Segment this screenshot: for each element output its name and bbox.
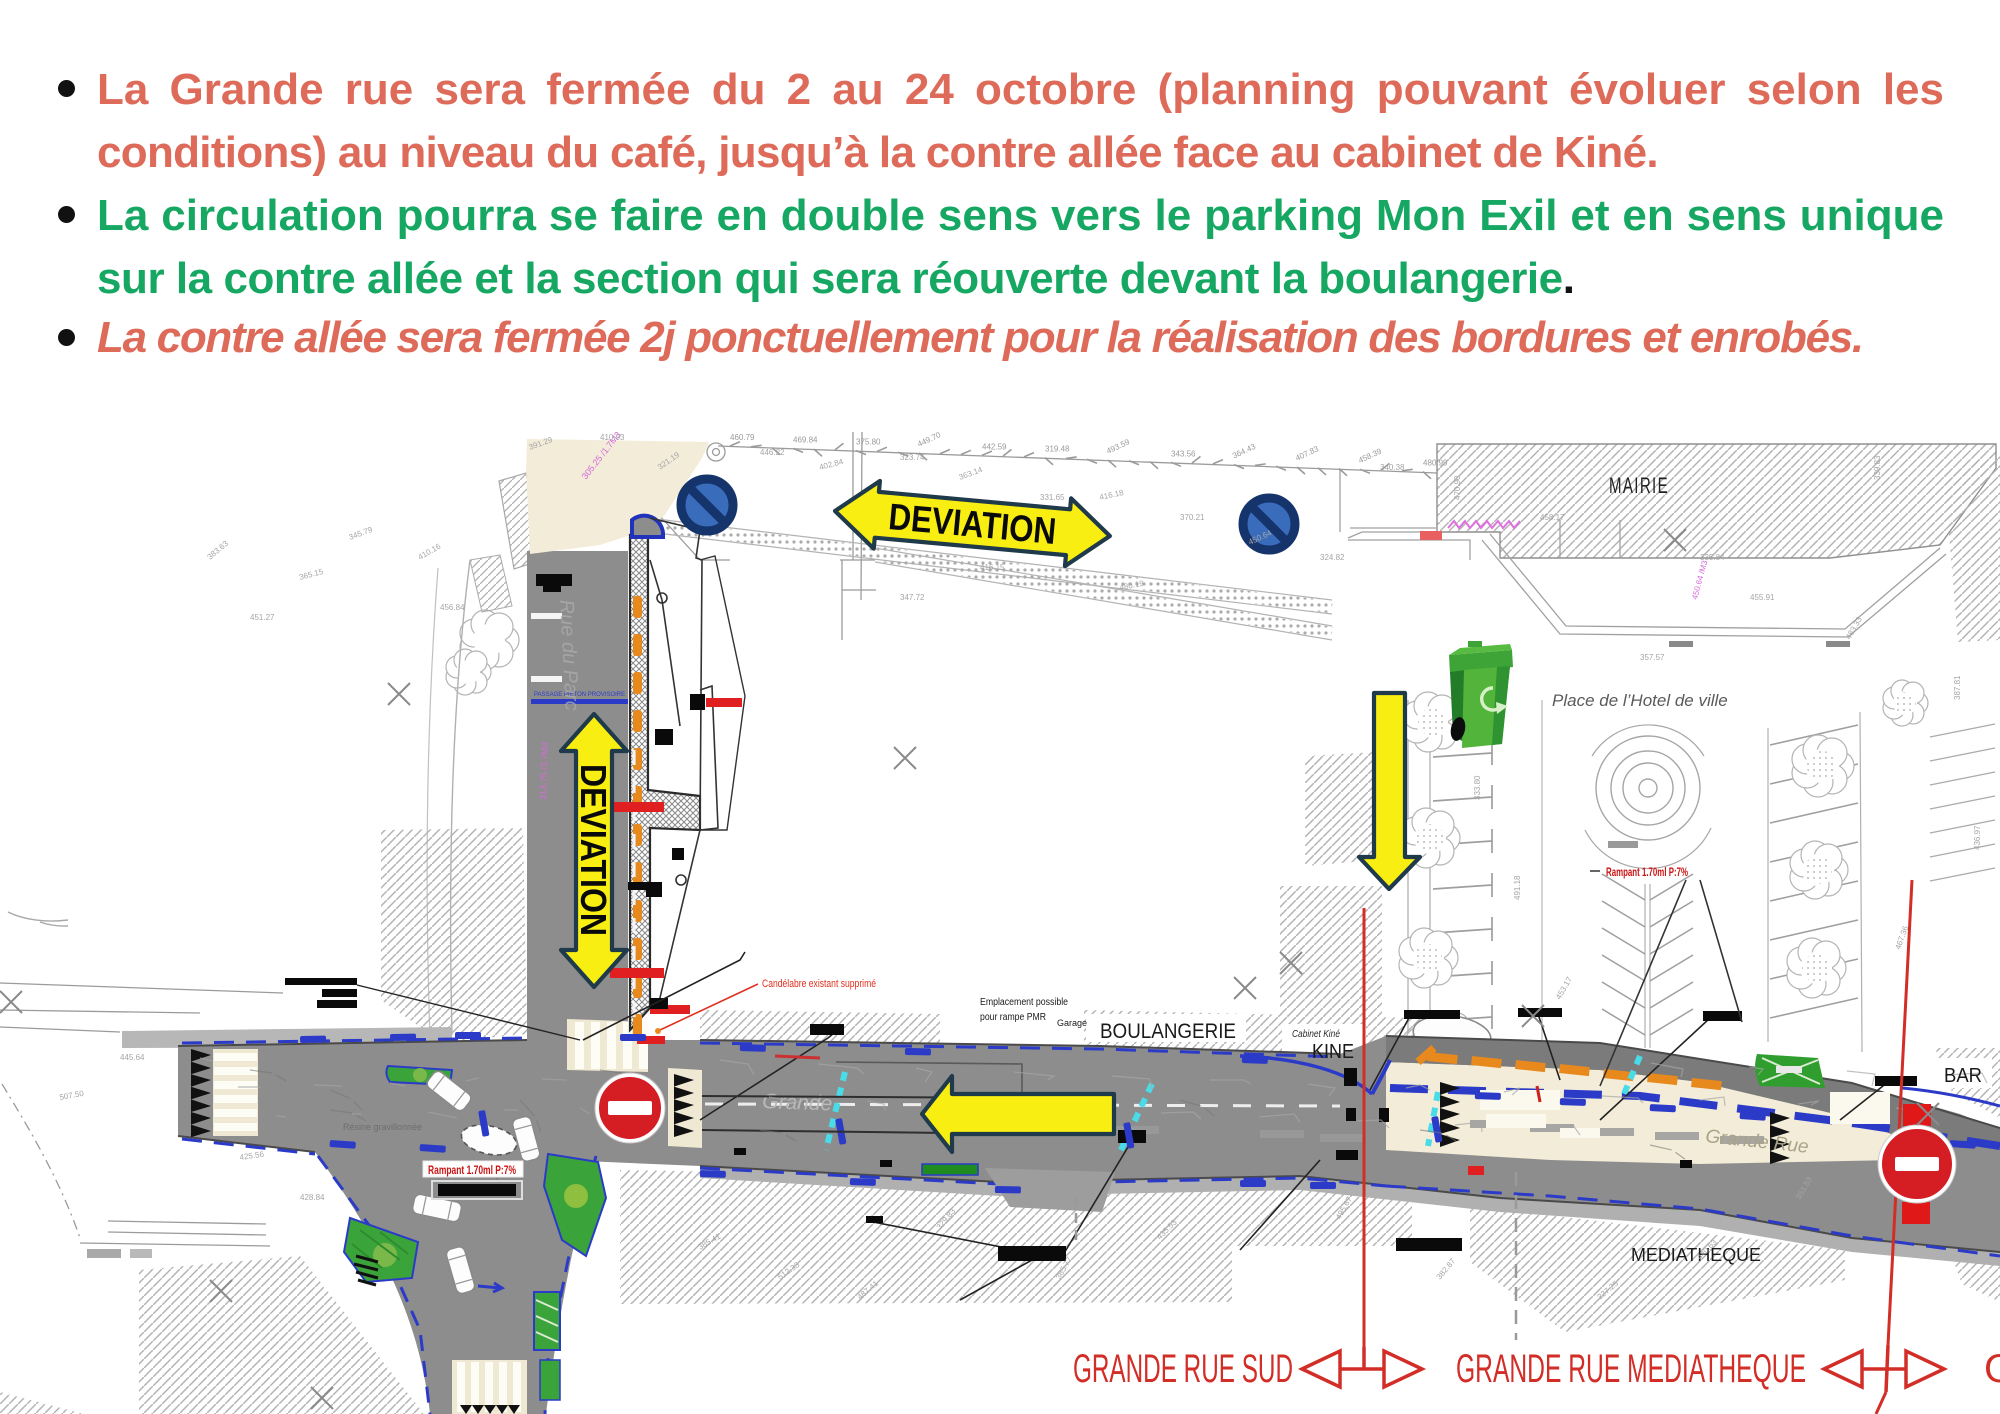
svg-text:425.56: 425.56 (239, 1150, 265, 1162)
svg-text:453.17: 453.17 (1554, 975, 1574, 1001)
svg-text:Candélabre existant supprimé: Candélabre existant supprimé (762, 978, 876, 990)
svg-text:347.72: 347.72 (900, 593, 925, 602)
svg-text:451.27: 451.27 (250, 613, 275, 622)
svg-text:GR: GR (1984, 1347, 2000, 1391)
svg-text:340.38: 340.38 (1380, 463, 1405, 472)
svg-text:Emplacement possible: Emplacement possible (980, 997, 1068, 1008)
svg-text:BAR: BAR (1944, 1065, 1982, 1087)
svg-text:Rampant 1.70ml P:7%: Rampant 1.70ml P:7% (428, 1163, 516, 1177)
svg-text:335.84: 335.84 (1700, 553, 1725, 562)
svg-text:455.91: 455.91 (1750, 593, 1775, 602)
svg-text:470.90: 470.90 (1453, 475, 1462, 500)
svg-text:469.84: 469.84 (793, 435, 818, 444)
svg-text:491.18: 491.18 (1513, 875, 1522, 900)
svg-text:410.93: 410.93 (600, 433, 625, 442)
svg-text:402.84: 402.84 (818, 457, 844, 472)
svg-text:BOULANGERIE: BOULANGERIE (1100, 1020, 1236, 1043)
svg-text:MAIRIE: MAIRIE (1609, 473, 1669, 498)
svg-text:345.79: 345.79 (348, 525, 375, 542)
svg-text:331.65: 331.65 (1040, 493, 1065, 502)
svg-text:365.15: 365.15 (298, 567, 324, 582)
svg-text:339.83: 339.83 (1873, 455, 1882, 480)
svg-text:GRANDE RUE MEDIATHEQUE: GRANDE RUE MEDIATHEQUE (1456, 1347, 1806, 1391)
svg-text:319.48: 319.48 (1045, 445, 1070, 454)
svg-text:Place de l’Hotel de ville: Place de l’Hotel de ville (1552, 691, 1728, 710)
svg-text:Cabinet Kiné: Cabinet Kiné (1292, 1029, 1340, 1040)
svg-text:428.84: 428.84 (300, 1193, 325, 1202)
svg-text:pour rampe PMR: pour rampe PMR (980, 1012, 1046, 1023)
svg-text:324.82: 324.82 (1320, 553, 1345, 562)
svg-text:375.80: 375.80 (856, 438, 881, 447)
svg-text:DEVIATION: DEVIATION (573, 764, 614, 936)
svg-text:493.59: 493.59 (1105, 437, 1131, 456)
svg-text:407.83: 407.83 (1294, 444, 1320, 463)
svg-text:Garage: Garage (1057, 1018, 1087, 1028)
svg-text:382.87: 382.87 (1435, 1256, 1458, 1281)
svg-text:416.18: 416.18 (1099, 488, 1125, 502)
svg-text:387.81: 387.81 (1953, 675, 1962, 700)
svg-text:450.64 /M3: 450.64 /M3 (1690, 559, 1709, 601)
svg-text:445.64: 445.64 (120, 1053, 145, 1062)
svg-text:KINE: KINE (1312, 1041, 1354, 1063)
svg-text:363.14: 363.14 (958, 465, 985, 482)
svg-text:416.15: 416.15 (980, 563, 1005, 572)
svg-text:460.79: 460.79 (730, 433, 755, 442)
svg-text:Résine gravillonnée: Résine gravillonnée (343, 1122, 422, 1132)
svg-text:436.97: 436.97 (1973, 825, 1982, 850)
svg-text:313.75 /3.7M3: 313.75 /3.7M3 (538, 742, 550, 800)
svg-text:323.74: 323.74 (900, 453, 925, 462)
svg-text:446.22: 446.22 (760, 448, 785, 457)
svg-text:456.84: 456.84 (440, 603, 465, 612)
svg-text:Rampant 1.70ml P:7%: Rampant 1.70ml P:7% (1606, 865, 1688, 879)
svg-text:370.21: 370.21 (1180, 513, 1205, 522)
svg-text:343.56: 343.56 (1171, 449, 1196, 458)
svg-text:364.43: 364.43 (1231, 442, 1257, 461)
svg-text:442.59: 442.59 (982, 442, 1007, 451)
svg-text:449.70: 449.70 (916, 430, 942, 449)
svg-text:GRANDE RUE SUD: GRANDE RUE SUD (1073, 1347, 1293, 1391)
svg-text:333.80: 333.80 (1473, 775, 1482, 800)
svg-text:383.63: 383.63 (206, 539, 231, 562)
svg-text:Grande: Grande (762, 1090, 833, 1115)
svg-text:507.50: 507.50 (59, 1089, 85, 1102)
svg-text:410.16: 410.16 (417, 541, 443, 561)
svg-text:458.17: 458.17 (1540, 513, 1565, 522)
svg-text:357.57: 357.57 (1640, 653, 1665, 662)
